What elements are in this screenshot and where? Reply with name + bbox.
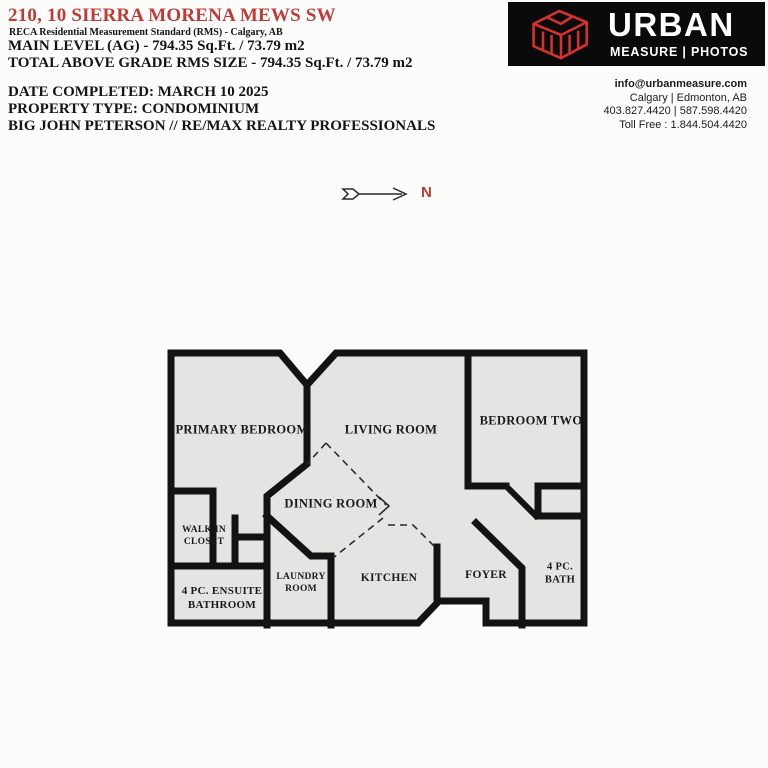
urban-measure-logo: URBAN MEASURE | PHOTOS (508, 2, 765, 66)
room-label-closet: CLOSET (184, 537, 224, 547)
contact-cities: Calgary | Edmonton, AB (603, 92, 747, 106)
room-label-walk-in: WALK IN (182, 525, 226, 535)
room-label-laundry: LAUNDRY (276, 572, 325, 582)
room-label-bathroom: BATHROOM (188, 599, 256, 611)
logo-brand-text: URBAN (608, 6, 735, 44)
north-arrow-icon (338, 182, 418, 206)
main-level-size: MAIN LEVEL (AG) - 794.35 Sq.Ft. / 73.79 … (8, 38, 305, 55)
room-label-living-room: LIVING ROOM (345, 423, 438, 438)
cube-monogram-icon (516, 5, 606, 65)
date-completed: DATE COMPLETED: MARCH 10 2025 (8, 84, 269, 101)
measurement-standard: RECA Residential Measurement Standard (R… (9, 27, 283, 38)
room-label-laundry-room: ROOM (285, 584, 317, 594)
logo-subtitle-text: MEASURE | PHOTOS (610, 45, 748, 59)
contact-email: info@urbanmeasure.com (603, 78, 747, 92)
room-label-dining-room: DINING ROOM (284, 497, 377, 512)
room-label-bedroom-two: BEDROOM TWO (480, 414, 583, 429)
property-type: PROPERTY TYPE: CONDOMINIUM (8, 101, 259, 118)
contact-phones: 403.827.4420 | 587.598.4420 (603, 105, 747, 119)
property-address: 210, 10 SIERRA MORENA MEWS SW (8, 5, 336, 27)
room-label-ensuite: 4 PC. ENSUITE (182, 585, 263, 597)
room-label-foyer: FOYER (465, 569, 507, 581)
room-label-primary-bedroom: PRIMARY BEDROOM (175, 423, 308, 438)
room-label-kitchen: KITCHEN (361, 572, 417, 584)
room-label-bath-pc: 4 PC. (547, 562, 573, 573)
contact-block: info@urbanmeasure.com Calgary | Edmonton… (603, 78, 747, 132)
agent-line: BIG JOHN PETERSON // RE/MAX REALTY PROFE… (8, 118, 435, 135)
total-above-grade-size: TOTAL ABOVE GRADE RMS SIZE - 794.35 Sq.F… (8, 55, 413, 72)
north-label: N (421, 184, 432, 201)
contact-toll-free: Toll Free : 1.844.504.4420 (603, 119, 747, 133)
room-label-bath: BATH (545, 575, 575, 586)
